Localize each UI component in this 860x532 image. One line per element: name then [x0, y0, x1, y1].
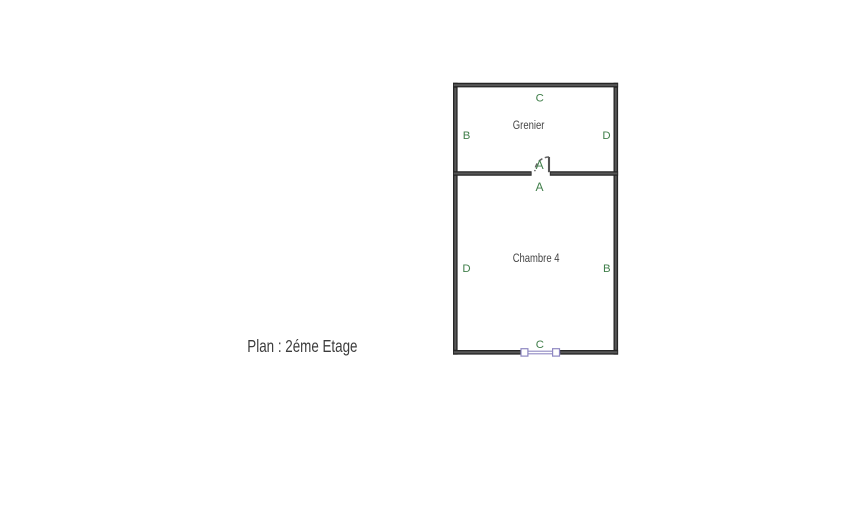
- svg-text:A: A: [536, 158, 544, 172]
- svg-text:B: B: [603, 263, 611, 275]
- svg-text:D: D: [462, 263, 470, 275]
- svg-text:Chambre 4: Chambre 4: [513, 251, 560, 265]
- svg-text:A: A: [535, 180, 543, 194]
- svg-text:D: D: [602, 130, 610, 142]
- svg-text:C: C: [536, 339, 544, 351]
- svg-text:Plan : 2éme Etage: Plan : 2éme Etage: [247, 336, 357, 356]
- svg-text:B: B: [463, 130, 471, 142]
- svg-text:Grenier: Grenier: [513, 118, 545, 132]
- svg-text:C: C: [536, 92, 544, 104]
